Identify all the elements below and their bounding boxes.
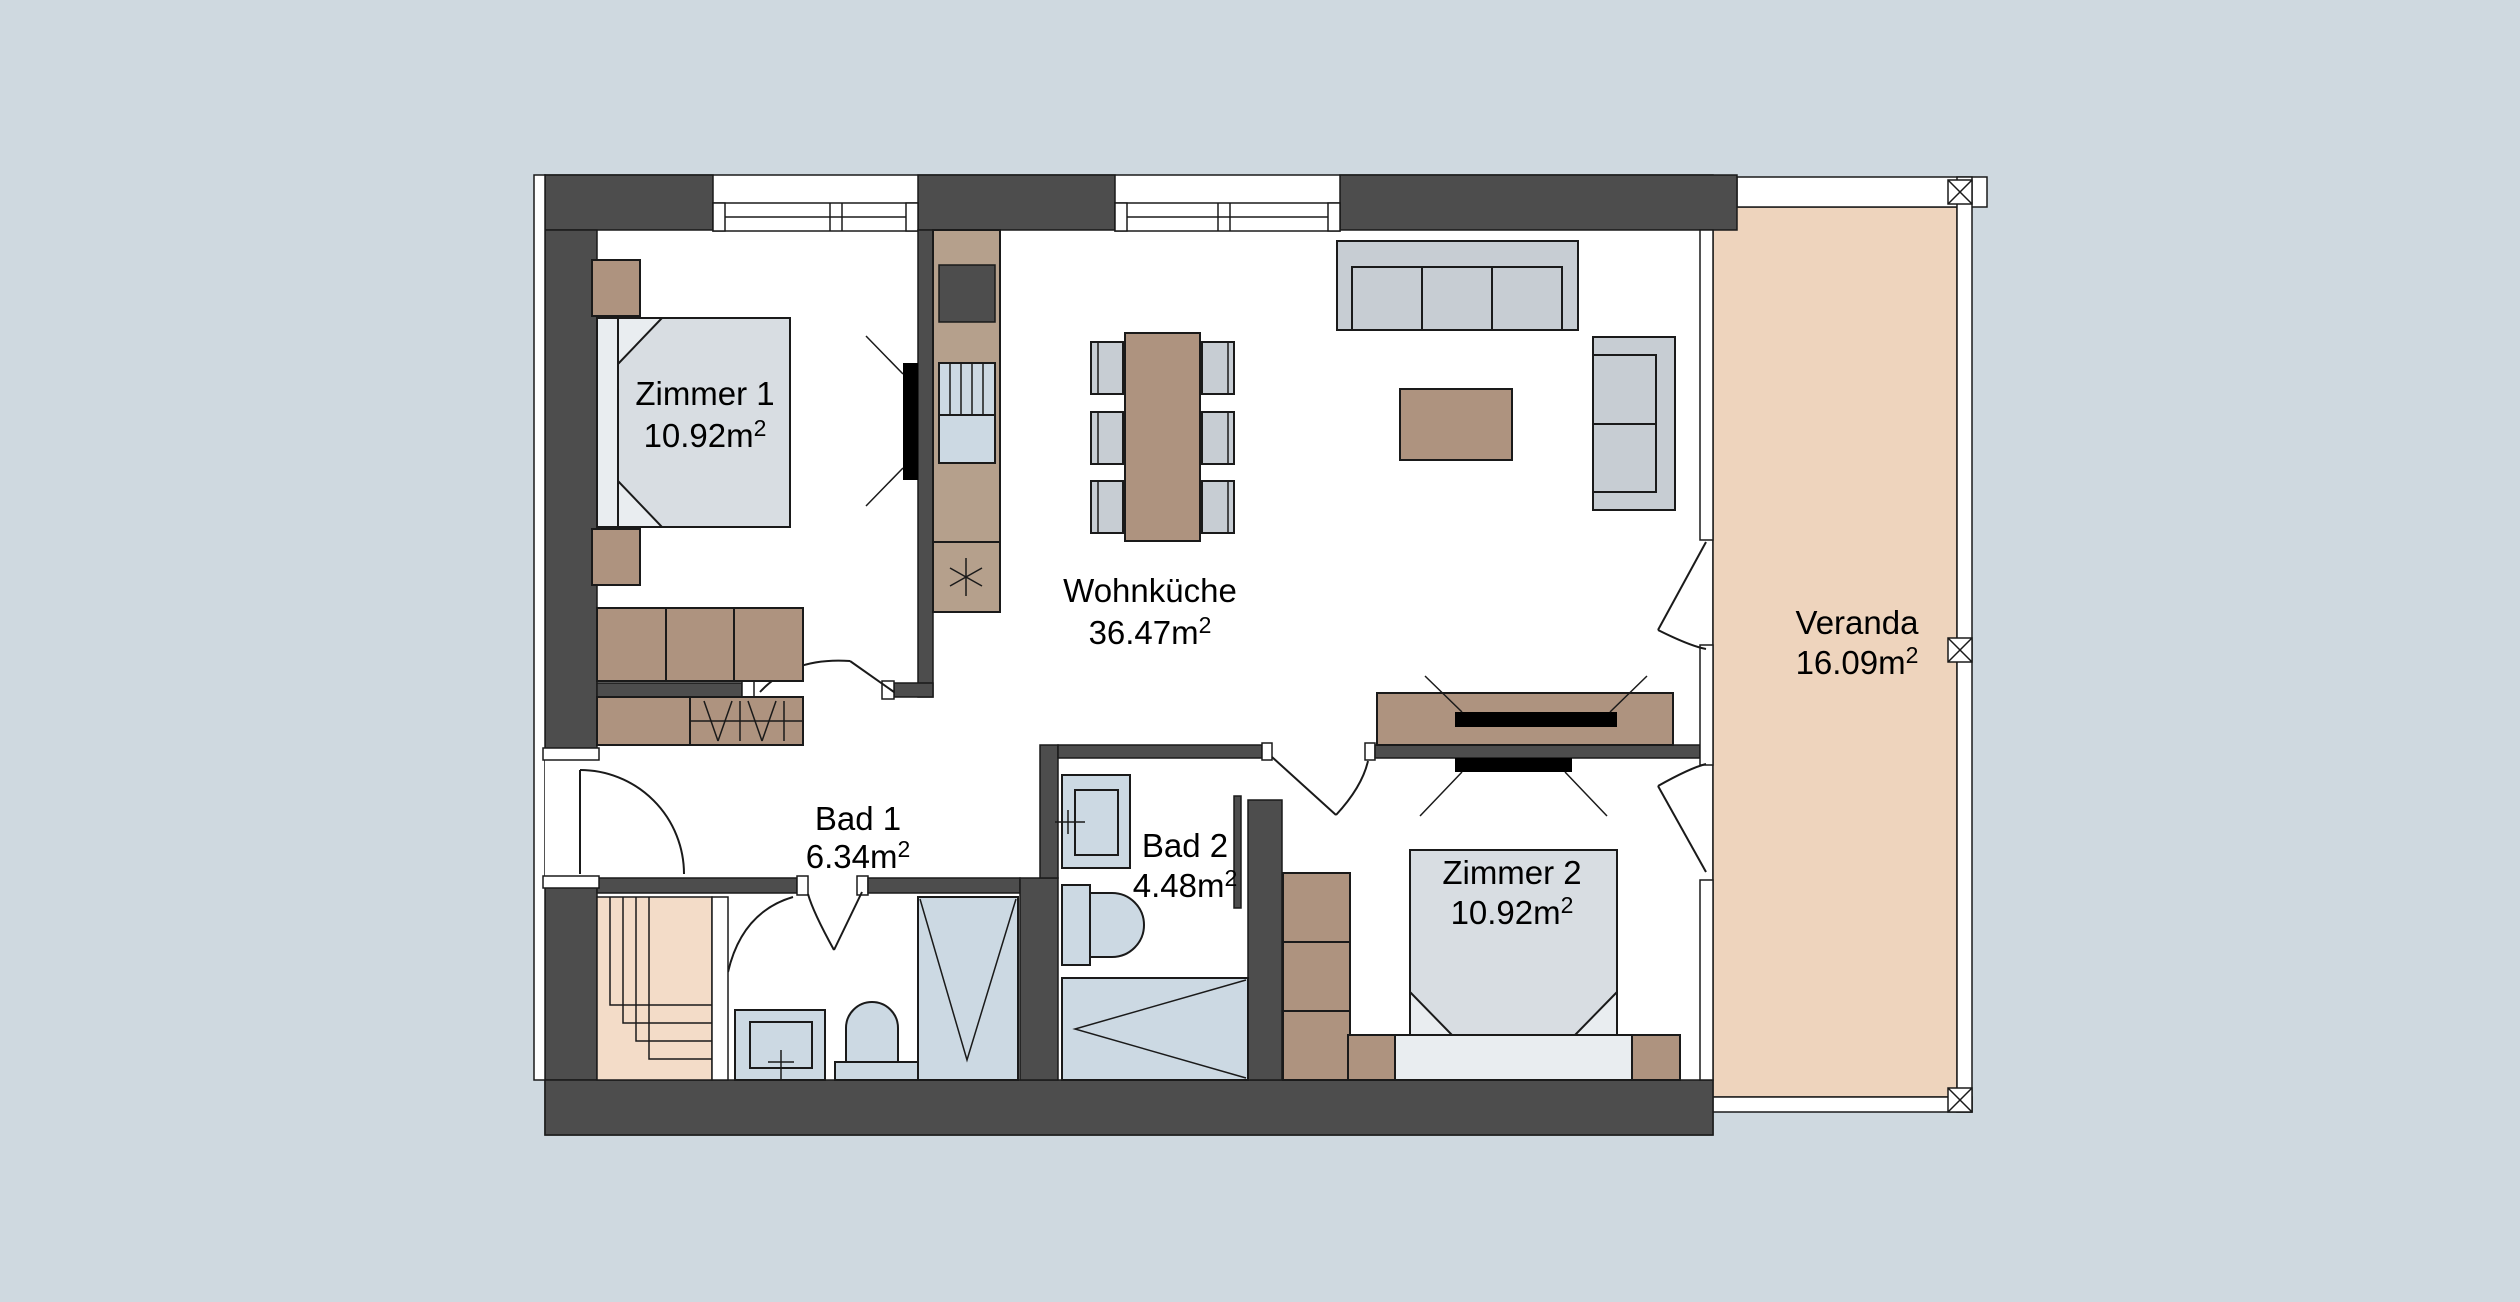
room-name: Zimmer 1 xyxy=(635,375,774,412)
sink-icon xyxy=(939,363,995,463)
glass-wall-upper xyxy=(1700,230,1713,540)
railing-post-icon xyxy=(1948,638,1972,662)
wall-bad2-west xyxy=(1040,745,1058,878)
chair-icon xyxy=(1202,481,1234,533)
wall-bad1-north-right xyxy=(868,878,1020,893)
chair-icon xyxy=(1202,342,1234,394)
nightstand-icon xyxy=(1348,1035,1395,1080)
window-icon xyxy=(1115,203,1340,231)
veranda-railing-bottom xyxy=(1713,1097,1972,1112)
nightstand-icon xyxy=(1632,1035,1680,1080)
stairs-icon xyxy=(597,897,712,1080)
wardrobe-icon xyxy=(597,697,803,745)
room-area: 4.48m2 xyxy=(1133,865,1238,904)
oven-icon xyxy=(939,265,995,322)
chair-icon xyxy=(1202,412,1234,464)
dining-table-icon xyxy=(1125,333,1200,541)
wall-zimmer1-south-left xyxy=(597,683,742,697)
room-name: Zimmer 2 xyxy=(1442,854,1581,891)
wall-bad-divider xyxy=(1020,878,1058,1080)
wall-hall-north-right xyxy=(1375,745,1700,758)
wall-kitchen xyxy=(918,230,933,697)
wall-zimmer1-south-right xyxy=(894,683,933,697)
chair-icon xyxy=(1091,412,1123,464)
wall-left-lower xyxy=(545,878,597,1080)
wall-top-pier xyxy=(918,175,1115,230)
tv-icon xyxy=(1455,712,1617,727)
wardrobe-icon xyxy=(1283,873,1350,1080)
room-area: 6.34m2 xyxy=(806,836,911,875)
room-name: Bad 2 xyxy=(1142,827,1228,864)
sofa-icon xyxy=(1337,241,1578,330)
wall-bad1-north-left xyxy=(597,878,797,893)
coffee-table-icon xyxy=(1400,389,1512,460)
nightstand-icon xyxy=(592,260,640,316)
sliding-door-panel xyxy=(1234,796,1241,908)
room-name: Wohnküche xyxy=(1063,572,1237,609)
stove-icon xyxy=(933,542,1000,612)
room-name: Bad 1 xyxy=(815,800,901,837)
floorplan-canvas: Zimmer 1 10.92m2 Wohnküche 36.47m2 Bad 1… xyxy=(0,0,2520,1302)
nightstand-icon xyxy=(592,529,640,585)
shower-icon xyxy=(918,897,1018,1080)
bed-headboard xyxy=(597,318,618,527)
glass-wall-lower xyxy=(1700,880,1713,1080)
dining-set xyxy=(1091,333,1234,541)
sideboard-icon xyxy=(597,608,803,681)
wall-left-upper xyxy=(545,230,597,758)
washbasin-icon xyxy=(1055,775,1130,868)
room-label-bad1: Bad 1 6.34m2 xyxy=(806,800,911,875)
wall-top-left xyxy=(545,175,713,230)
wall-bottom xyxy=(545,1080,1713,1135)
washbasin-icon xyxy=(735,1010,825,1080)
glass-wall-middle xyxy=(1700,645,1713,765)
wall-top-right xyxy=(1340,175,1737,230)
room-name: Veranda xyxy=(1796,604,1920,641)
room-area: 10.92m2 xyxy=(644,415,767,454)
shower-icon xyxy=(1062,978,1248,1080)
stair-partition xyxy=(712,897,728,1080)
wall-bad2-east xyxy=(1248,800,1282,1080)
room-area: 36.47m2 xyxy=(1089,612,1212,651)
window-icon xyxy=(713,203,918,231)
room-area: 16.09m2 xyxy=(1796,642,1919,681)
chair-icon xyxy=(1091,481,1123,533)
door-jamb xyxy=(857,876,868,895)
sofa-icon xyxy=(1593,337,1675,510)
wall-hall-north-left xyxy=(1058,745,1262,758)
chair-icon xyxy=(1091,342,1123,394)
facade-strip xyxy=(534,175,545,1080)
door-jamb xyxy=(1262,743,1272,760)
bed-headboard xyxy=(1395,1035,1632,1080)
kitchen-unit xyxy=(933,230,1000,612)
door-jamb xyxy=(797,876,808,895)
door-jamb xyxy=(1365,743,1375,760)
railing-post-icon xyxy=(1948,1088,1972,1112)
room-area: 10.92m2 xyxy=(1451,892,1574,931)
railing-post-icon xyxy=(1948,180,1972,204)
